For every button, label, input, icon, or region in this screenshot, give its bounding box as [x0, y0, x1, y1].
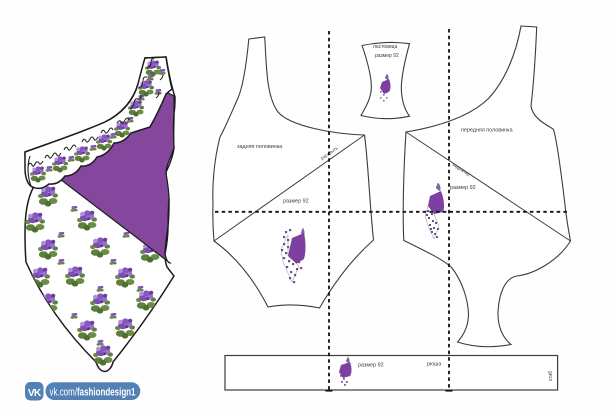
svg-text:сгиб: сгиб	[548, 371, 554, 381]
svg-text:vk.com/fashiondesign1: vk.com/fashiondesign1	[50, 386, 136, 398]
svg-text:задняя половинка: задняя половинка	[237, 144, 282, 150]
svg-text:передняя половинка: передняя половинка	[461, 128, 513, 134]
svg-text:VK: VK	[28, 388, 42, 399]
svg-text:размер 92: размер 92	[450, 185, 476, 191]
svg-text:размер 92: размер 92	[358, 363, 384, 369]
svg-text:ластовица: ластовица	[373, 44, 398, 50]
svg-text:размер 92: размер 92	[283, 199, 309, 205]
svg-text:рюша: рюша	[427, 361, 441, 367]
svg-text:размер 92: размер 92	[375, 53, 399, 59]
